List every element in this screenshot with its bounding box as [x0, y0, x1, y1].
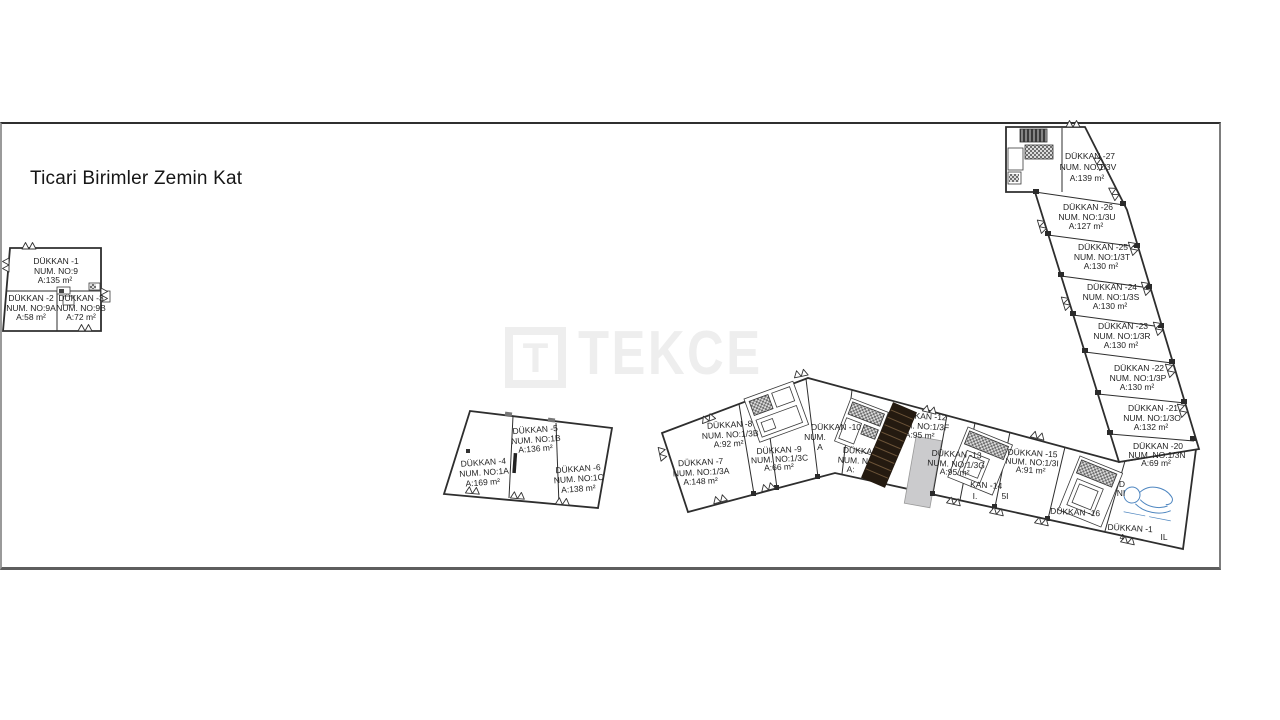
unit-23-area: A:130 m² — [1104, 340, 1139, 350]
unit-27-name: DÜKKAN -27 — [1065, 151, 1115, 161]
unit-17-fragment-b: IL — [1160, 532, 1167, 542]
unit-10-area: A — [817, 442, 823, 452]
unit-14-fragment-2: 5I — [1001, 491, 1008, 501]
unit-26-area: A:127 m² — [1069, 221, 1104, 231]
floorplan-drawing: DÜKKAN -1 NUM. NO:9 A:135 m² DÜKKAN -2 N… — [0, 0, 1280, 720]
unit-17-fragment-a: 4 — [1120, 532, 1125, 542]
unit-21-area: A:132 m² — [1134, 422, 1169, 432]
door-icon — [1066, 121, 1080, 128]
unit-22-area: A:130 m² — [1120, 382, 1155, 392]
unit-26-name: DÜKKAN -26 — [1063, 202, 1113, 212]
unit-22-name: DÜKKAN -22 — [1114, 363, 1164, 373]
unit-13-area: A:95 m² — [940, 466, 970, 478]
unit-14-fragment-1: I. — [973, 491, 978, 501]
unit-3-area: A:72 m² — [66, 312, 96, 322]
unit-2-area: A:58 m² — [16, 312, 46, 322]
floorplan-page: Ticari Birimler Zemin Kat T TEKCE — [0, 0, 1280, 720]
unit-8-area: A:92 m² — [714, 438, 744, 450]
unit-24-name: DÜKKAN -24 — [1087, 282, 1137, 292]
unit-3-name: DÜKKAN -3 — [58, 293, 104, 303]
unit-20-area: A:69 m² — [1141, 458, 1171, 468]
unit-14-name-fragment: KAN -14 — [970, 479, 1003, 491]
unit-27-area: A:139 m² — [1070, 173, 1105, 183]
unit-27-num: NUM. NO:1/3V — [1060, 162, 1117, 172]
unit-2-name: DÜKKAN -2 — [8, 293, 54, 303]
door-icon — [793, 369, 808, 378]
unit-25-name: DÜKKAN -25 — [1078, 242, 1128, 252]
stairs-icon — [1020, 129, 1047, 142]
unit-10-name: DÜKKAN -10 — [811, 422, 861, 432]
unit-10-num: NUM. — [804, 432, 826, 442]
unit-1-name: DÜKKAN -1 — [33, 256, 79, 266]
unit-25-area: A:130 m² — [1084, 261, 1119, 271]
unit-21-name: DÜKKAN -21 — [1128, 403, 1178, 413]
unit-7-area: A:148 m² — [683, 475, 718, 487]
unit-11-area: A: — [846, 464, 855, 474]
fragment-ni: NI — [1117, 488, 1126, 498]
unit-1-area: A:135 m² — [38, 275, 73, 285]
unit-9-area: A:66 m² — [764, 461, 794, 473]
unit-12-area: A:95 m² — [905, 429, 935, 441]
unit-24-area: A:130 m² — [1093, 301, 1128, 311]
door-icon — [658, 446, 667, 461]
unit-15-area: A:91 m² — [1016, 464, 1046, 476]
elevator-icon — [1025, 145, 1053, 159]
unit-23-name: DÜKKAN -23 — [1098, 321, 1148, 331]
